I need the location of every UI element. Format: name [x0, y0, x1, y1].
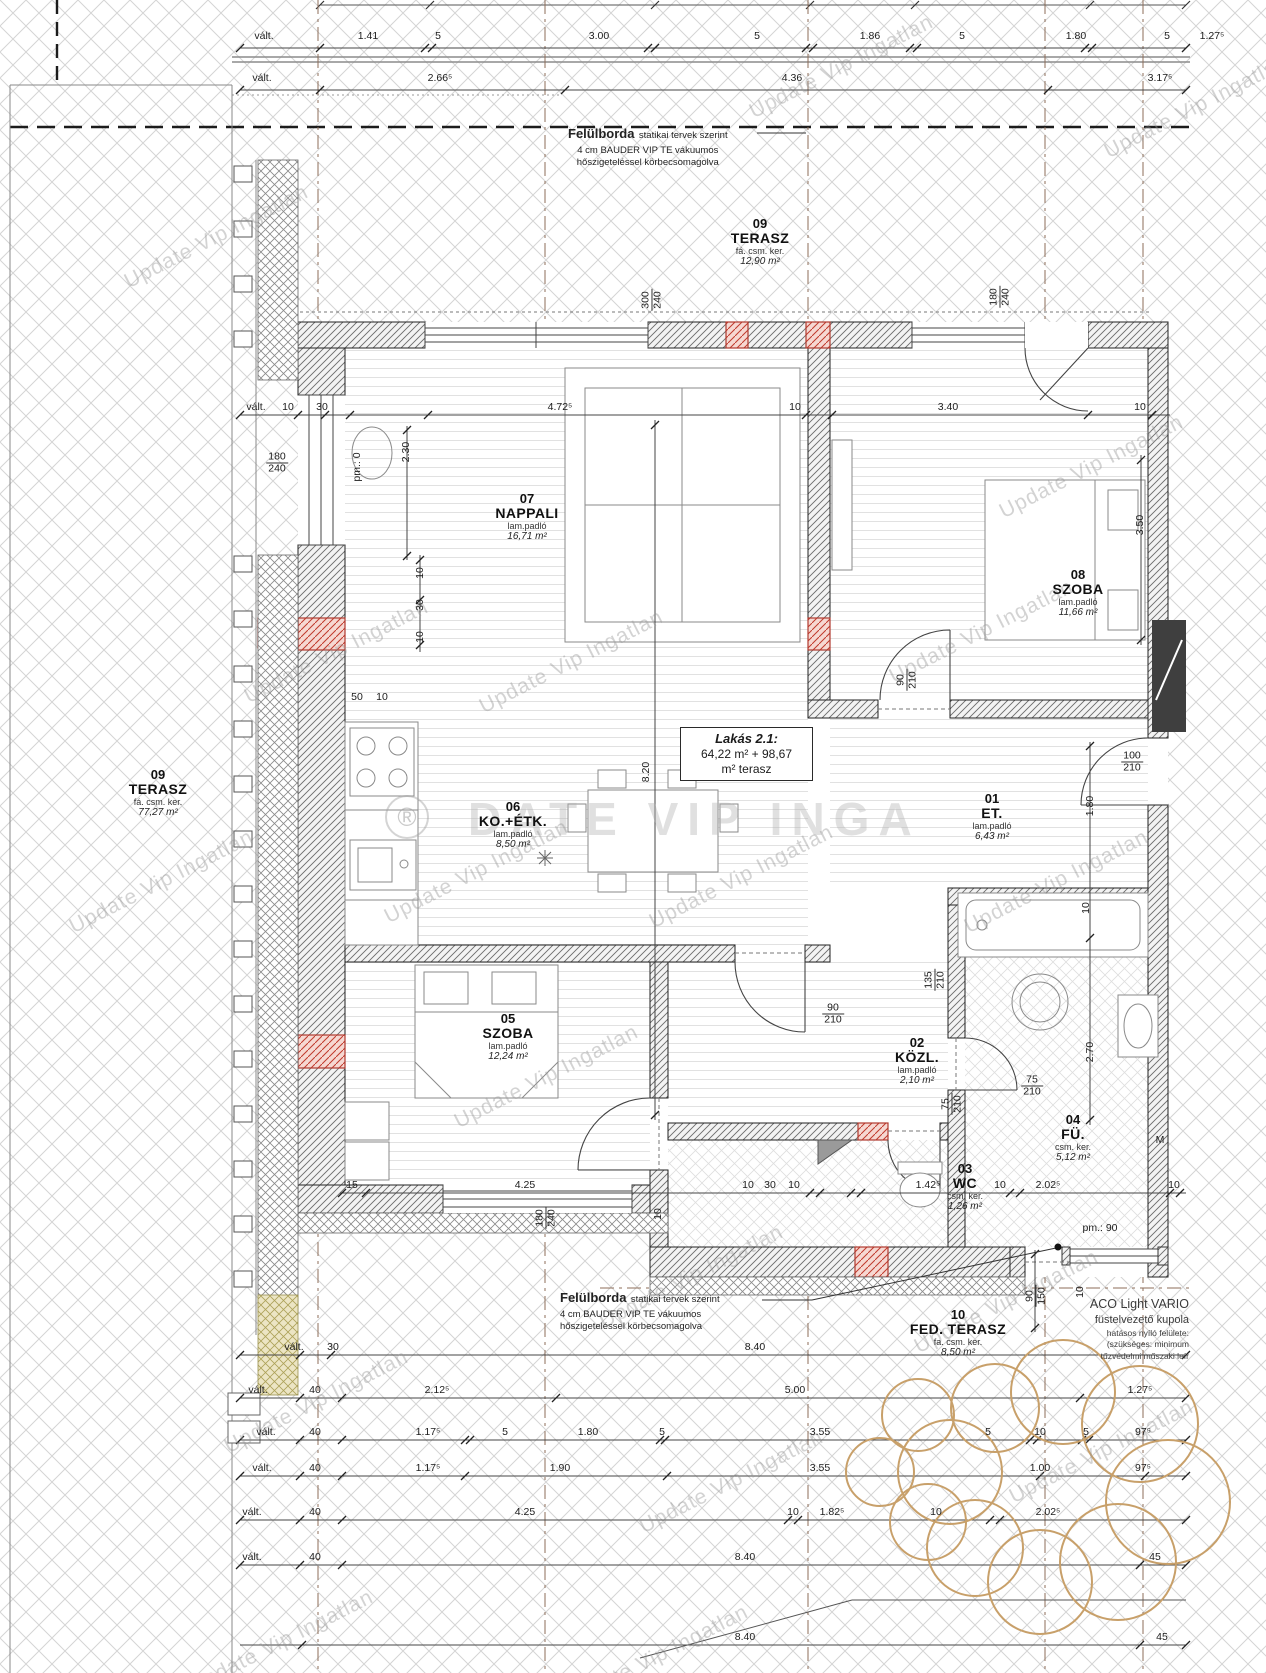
dim-label: 10	[652, 1208, 664, 1220]
room-name: KO.+ÉTK.	[479, 814, 547, 829]
dim-door-fraction: 135 210	[923, 969, 946, 991]
dim-label: 8.40	[735, 1631, 755, 1643]
dim-label: 1.80	[1084, 796, 1096, 816]
aco-line: füstelvezető kupola	[1090, 1313, 1189, 1328]
dim-label: 10	[787, 1506, 799, 1518]
dim-label: 5.00	[785, 1384, 805, 1396]
note-strong: Felülborda	[568, 126, 634, 141]
dim-label: 5	[959, 30, 965, 42]
note-rest: statikai tervek szerint	[631, 1294, 720, 1305]
dim-num: 90	[1024, 1290, 1035, 1302]
dim-door-fraction: 90 210	[895, 669, 918, 691]
dim-label: 40	[309, 1426, 321, 1438]
aco-line: hatásos nyíló felülete:	[1090, 1328, 1189, 1339]
room-label-szoba-05: 05 SZOBA lam.padló 12,24 m²	[483, 1012, 534, 1063]
room-name: ET.	[972, 806, 1011, 821]
room-number: 04	[1055, 1113, 1091, 1127]
dim-label: 4.25	[515, 1506, 535, 1518]
dim-label: 1.42⁵	[916, 1179, 941, 1191]
dim-den: 240	[652, 289, 664, 311]
dim-label: 3.55	[810, 1462, 830, 1474]
dim-label: vált.	[242, 1506, 261, 1518]
dim-num: 75	[1026, 1074, 1038, 1085]
room-number: 03	[947, 1162, 983, 1176]
dim-label: vált.	[248, 1384, 267, 1396]
room-label-terasz-left: 09 TERASZ fá. csm. ker. 77,27 m²	[129, 768, 187, 819]
dim-label: 1.41	[358, 30, 378, 42]
room-label-nappali: 07 NAPPALI lam.padló 16,71 m²	[495, 492, 558, 543]
dim-door-fraction: 180 240	[266, 451, 288, 474]
dim-label: 2.30	[400, 442, 412, 462]
dim-label: 5	[1083, 1426, 1089, 1438]
note-line: 4 cm BAUDER VIP TE vákuumos	[568, 145, 728, 157]
room-number: 02	[895, 1036, 939, 1050]
dim-window-fraction: 90 150	[1024, 1285, 1047, 1307]
room-name: TERASZ	[731, 231, 789, 246]
room-floor: lam.padló	[972, 821, 1011, 831]
entrance-stair-block	[1152, 620, 1186, 732]
dim-label: 2.66⁵	[428, 72, 453, 84]
room-floor: lam.padló	[479, 829, 547, 839]
room-floor: fá. csm. ker.	[731, 246, 789, 256]
dim-label: 40	[309, 1462, 321, 1474]
dim-label: 3.40	[938, 401, 958, 413]
dim-label: 30	[327, 1341, 339, 1353]
room-name: TERASZ	[129, 782, 187, 797]
dim-label: 10	[1074, 1286, 1086, 1298]
unit-info-box: Lakás 2.1: 64,22 m² + 98,67 m² terasz	[680, 727, 813, 781]
dim-den: 210	[907, 669, 919, 691]
dim-label: 30	[414, 599, 426, 611]
dim-label: 2.02⁵	[1036, 1179, 1061, 1191]
washbasin-icon	[1118, 995, 1158, 1057]
room-area: 2,10 m²	[895, 1075, 939, 1087]
dim-num: 180	[268, 451, 286, 462]
unit-title: Lakás 2.1:	[688, 731, 805, 747]
dim-door-fraction: 100 210	[1121, 750, 1143, 773]
dim-den: 240	[1000, 286, 1012, 308]
dim-label: 10	[1168, 1179, 1180, 1191]
dim-label: 4.25	[515, 1179, 535, 1191]
dim-label: 2.02⁵	[1036, 1506, 1061, 1518]
dim-label: 2.70	[1084, 1042, 1096, 1062]
dim-num: 100	[1123, 750, 1141, 761]
room-label-kozl: 02 KÖZL. lam.padló 2,10 m²	[895, 1036, 939, 1087]
dim-label: pm.: 0	[351, 452, 363, 481]
dim-label: 3.00	[589, 30, 609, 42]
room-area: 8,50 m²	[479, 839, 547, 851]
sofa-icon	[565, 368, 800, 642]
note-rest: statikai tervek szerint	[639, 130, 728, 141]
room-name: FED. TERASZ	[910, 1322, 1006, 1337]
dim-label: vált.	[254, 30, 273, 42]
dim-label: 10	[788, 1179, 800, 1191]
dim-num: 90	[895, 674, 906, 686]
room-area: 1,26 m²	[947, 1201, 983, 1213]
room-area: 12,24 m²	[483, 1051, 534, 1063]
dim-label: 10	[414, 567, 426, 579]
room-number: 09	[129, 768, 187, 782]
room-floor: fá. csm. ker.	[129, 797, 187, 807]
dim-label: 97⁵	[1135, 1462, 1151, 1474]
dim-label: 1.82⁵	[820, 1506, 845, 1518]
dim-num: 180	[988, 288, 999, 306]
room-area: 16,71 m²	[495, 531, 558, 543]
dim-window-fraction: 180 240	[534, 1207, 557, 1229]
room-name: NAPPALI	[495, 506, 558, 521]
dim-den: 210	[1121, 762, 1143, 774]
dim-label: 10	[1080, 902, 1092, 914]
dim-label: vált.	[252, 72, 271, 84]
note-felulborda-top: Felülborda statikai tervek szerint 4 cm …	[568, 124, 728, 169]
note-strong: Felülborda	[560, 1290, 626, 1305]
dim-label: 5	[435, 30, 441, 42]
room-number: 01	[972, 792, 1011, 806]
dim-label: 40	[309, 1506, 321, 1518]
note-felulborda-bottom: Felülborda statikai tervek szerint 4 cm …	[560, 1288, 720, 1333]
dim-den: 210	[935, 969, 947, 991]
room-number: 06	[479, 800, 547, 814]
dim-window-fraction: 180 240	[988, 286, 1011, 308]
wardrobe-icon	[345, 1102, 389, 1140]
dim-label: 10	[994, 1179, 1006, 1191]
dim-den: 210	[822, 1014, 844, 1026]
room-floor: lam.padló	[495, 521, 558, 531]
note-aco-dome: ACO Light VARIO füstelvezető kupola hatá…	[1090, 1296, 1189, 1362]
dim-num: 300	[640, 291, 651, 309]
dim-label: 10	[414, 631, 426, 643]
room-label-koetk: 06 KO.+ÉTK. lam.padló 8,50 m²	[479, 800, 547, 851]
room-name: SZOBA	[1053, 582, 1104, 597]
dim-num: 75	[940, 1098, 951, 1110]
room-number: 09	[731, 217, 789, 231]
dim-label: 5	[985, 1426, 991, 1438]
dim-label: 10	[930, 1506, 942, 1518]
dim-num: 90	[827, 1002, 839, 1013]
dim-den: 150	[1036, 1285, 1048, 1307]
dim-label: vált.	[284, 1341, 303, 1353]
dim-label: 5	[1164, 30, 1170, 42]
note-line: hőszigeteléssel körbecsomagolva	[568, 157, 728, 169]
wardrobe-icon	[345, 1142, 389, 1180]
dim-label: vált.	[256, 1426, 275, 1438]
dim-label: 5	[502, 1426, 508, 1438]
room-label-terasz-top: 09 TERASZ fá. csm. ker. 12,90 m²	[731, 217, 789, 268]
dim-num: 180	[534, 1209, 545, 1227]
room-area: 77,27 m²	[129, 807, 187, 819]
dim-label: 40	[309, 1384, 321, 1396]
dim-label: vált.	[246, 401, 265, 413]
room-area: 11,66 m²	[1053, 607, 1104, 619]
aco-line: ACO Light VARIO	[1090, 1296, 1189, 1313]
room-number: 08	[1053, 568, 1104, 582]
dim-label: 1.17⁵	[416, 1426, 441, 1438]
dim-label: 8.20	[640, 762, 652, 782]
room-label-wc: 03 WC csm. ker. 1,26 m²	[947, 1162, 983, 1213]
dim-label: 1.17⁵	[416, 1462, 441, 1474]
room-label-szoba-08: 08 SZOBA lam.padló 11,66 m²	[1053, 568, 1104, 619]
dim-label: 3.55	[810, 1426, 830, 1438]
dim-label: 45	[1149, 1551, 1161, 1563]
sideboard-icon	[832, 440, 852, 570]
dim-label: M	[1156, 1134, 1165, 1146]
unit-area: 64,22 m² + 98,67	[688, 747, 805, 762]
dim-label: 1.80	[1066, 30, 1086, 42]
dim-label: 10	[1134, 401, 1146, 413]
room-label-fu: 04 FÜ. csm. ker. 5,12 m²	[1055, 1113, 1091, 1164]
dim-label: 1.27⁵	[1128, 1384, 1153, 1396]
room-label-fed-terasz: 10 FED. TERASZ fa. csm. ker. 8,50 m²	[910, 1308, 1006, 1359]
dim-door-fraction: 75 210	[940, 1093, 963, 1115]
room-number: 10	[910, 1308, 1006, 1322]
room-area: 5,12 m²	[1055, 1152, 1091, 1164]
room-name: FÜ.	[1055, 1127, 1091, 1142]
room-number: 05	[483, 1012, 534, 1026]
dim-door-fraction: 75 210	[1021, 1074, 1043, 1097]
dim-label: 10	[1034, 1426, 1046, 1438]
dim-den: 240	[546, 1207, 558, 1229]
room-area: 6,43 m²	[972, 831, 1011, 843]
dim-label: vált.	[252, 1462, 271, 1474]
dim-label: 8.40	[745, 1341, 765, 1353]
room-number: 07	[495, 492, 558, 506]
dim-label: 10	[742, 1179, 754, 1191]
dim-label: 2.12⁵	[425, 1384, 450, 1396]
room-name: SZOBA	[483, 1026, 534, 1041]
dim-label: 5	[754, 30, 760, 42]
dim-label: 40	[309, 1551, 321, 1563]
dim-label: 30	[316, 401, 328, 413]
room-floor: lam.padló	[895, 1065, 939, 1075]
room-name: KÖZL.	[895, 1050, 939, 1065]
dim-window-fraction: 300 240	[640, 289, 663, 311]
dim-label: 5	[659, 1426, 665, 1438]
room-floor: lam.padló	[483, 1041, 534, 1051]
dim-label: vált.	[242, 1551, 261, 1563]
dim-label: 8.40	[735, 1551, 755, 1563]
unit-terrace-area: m² terasz	[688, 762, 805, 777]
dim-label: pm.: 90	[1082, 1222, 1117, 1234]
room-floor: csm. ker.	[1055, 1142, 1091, 1152]
dim-label: 1.90	[550, 1462, 570, 1474]
aco-line: tűzvédelmi műszaki leír	[1090, 1351, 1189, 1362]
dim-label: 3.50	[1134, 515, 1146, 535]
aco-line: (szükséges: minimum	[1090, 1339, 1189, 1350]
dim-den: 210	[952, 1093, 964, 1115]
dim-num: 135	[923, 971, 934, 989]
dim-label: 1.00	[1030, 1462, 1050, 1474]
room-floor: lam.padló	[1053, 597, 1104, 607]
note-line: hőszigeteléssel körbecsomagolva	[560, 1321, 720, 1333]
dim-label: 4.36	[782, 72, 802, 84]
dim-door-fraction: 90 210	[822, 1002, 844, 1025]
dim-label: 45	[1156, 1631, 1168, 1643]
dim-label: 1.86	[860, 30, 880, 42]
dim-label: 1.27⁵	[1200, 30, 1225, 42]
dim-label: 50	[351, 691, 363, 703]
dim-den: 210	[1021, 1086, 1043, 1098]
dim-label: 15	[346, 1179, 358, 1191]
registered-trademark-watermark: ®	[385, 795, 429, 839]
floor-plan-sheet: DATE VIP INGA ® Update Vip Ingatlan Upda…	[0, 0, 1266, 1673]
dim-label: 10	[376, 691, 388, 703]
dim-den: 240	[266, 463, 288, 475]
dim-label: 3.17⁵	[1148, 72, 1173, 84]
dim-label: 1.80	[578, 1426, 598, 1438]
dim-label: 10	[789, 401, 801, 413]
room-label-et: 01 ET. lam.padló 6,43 m²	[972, 792, 1011, 843]
room-floor: fa. csm. ker.	[910, 1337, 1006, 1347]
dim-label: 97⁵	[1135, 1426, 1151, 1438]
note-line: 4 cm BAUDER VIP TE vákuumos	[560, 1309, 720, 1321]
room-area: 12,90 m²	[731, 256, 789, 268]
dim-label: 4.72⁵	[548, 401, 573, 413]
room-floor: csm. ker.	[947, 1191, 983, 1201]
room-area: 8,50 m²	[910, 1347, 1006, 1359]
dim-label: 30	[764, 1179, 776, 1191]
dim-label: 10	[282, 401, 294, 413]
room-name: WC	[947, 1176, 983, 1191]
